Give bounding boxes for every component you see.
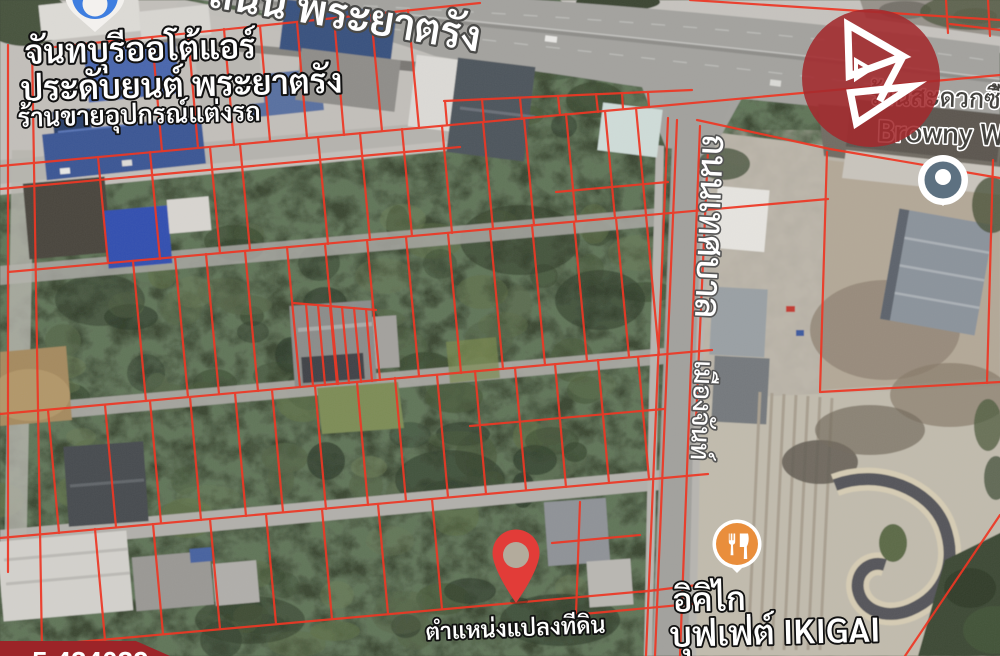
svg-text:5.424039: 5.424039 xyxy=(32,646,149,656)
